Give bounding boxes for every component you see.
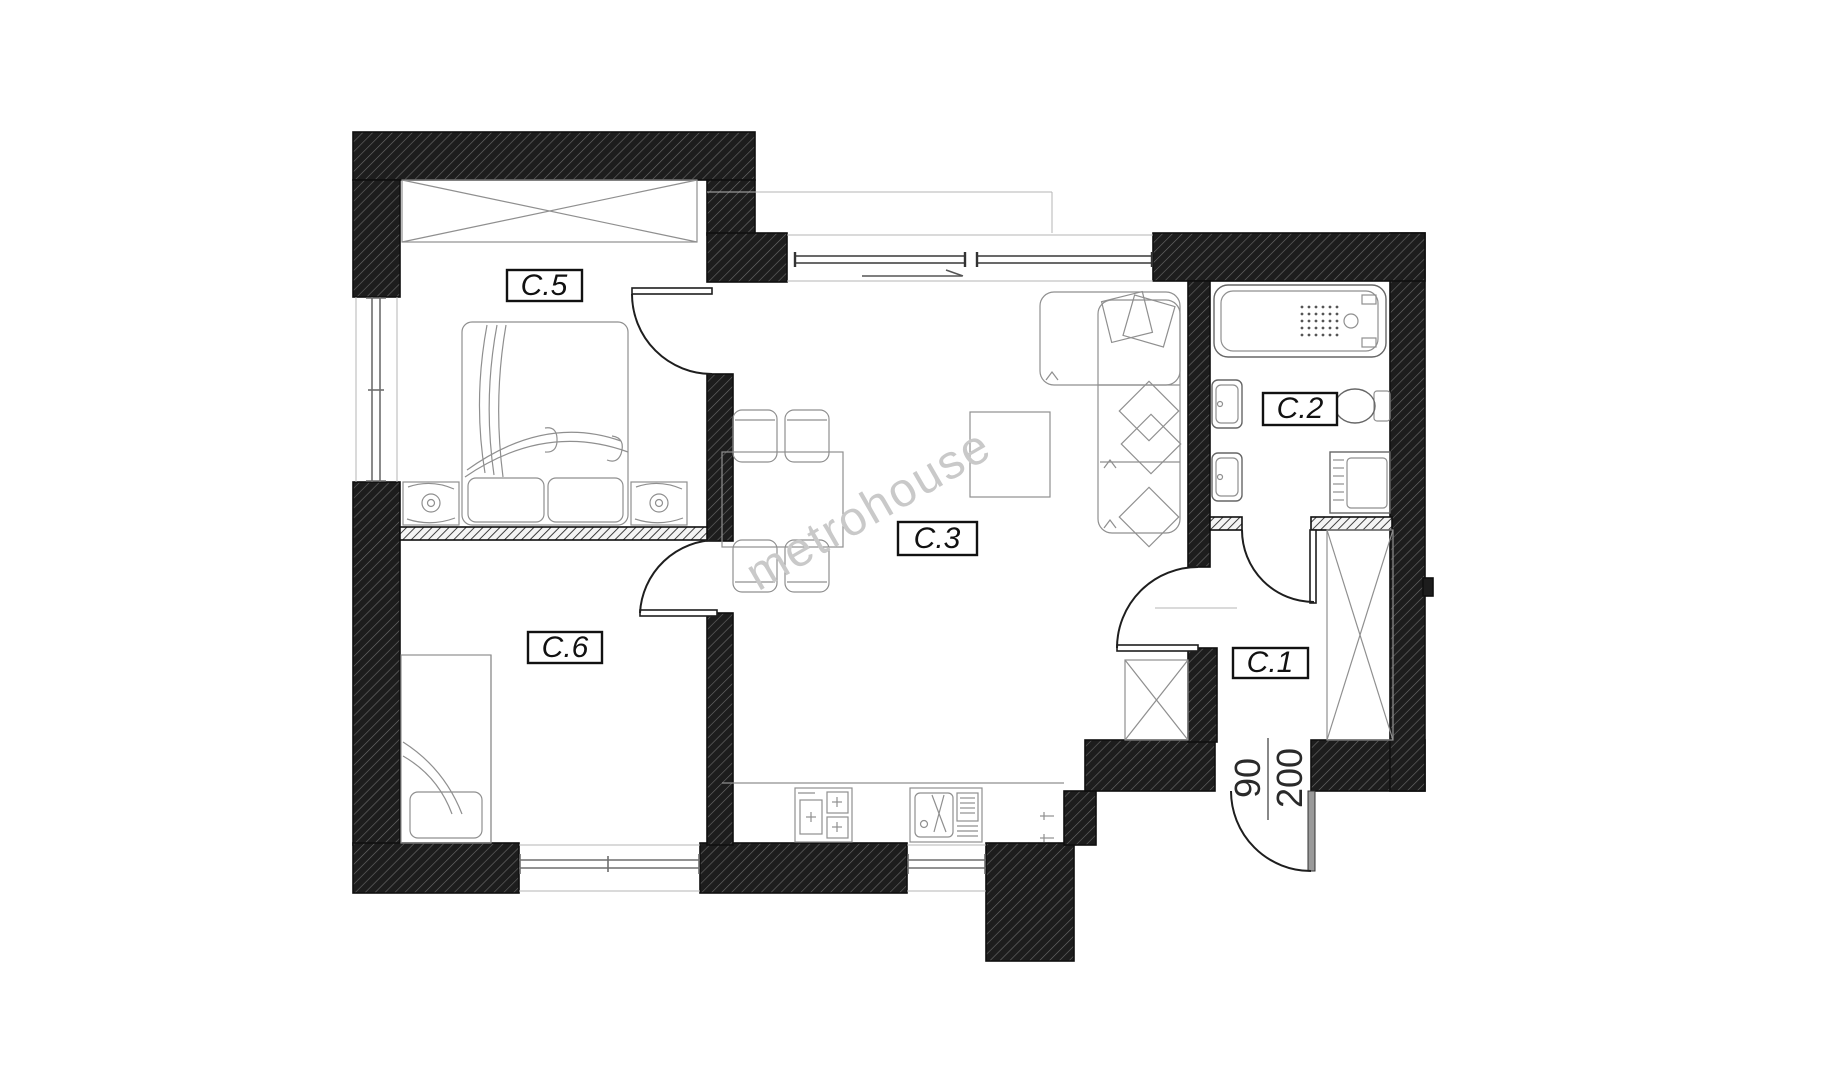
bathtub [1214,285,1386,357]
wall-segment [707,233,787,282]
entrance-door-dimension: 90 200 [1227,738,1310,820]
bathroom-sink [1212,380,1242,428]
door-height-value: 200 [1269,748,1310,808]
wall-segment [1064,791,1096,845]
nightstand-right [631,482,687,525]
window-kitchen [907,845,986,891]
sofa-pillow [1102,292,1181,547]
corner-sofa [1040,292,1181,547]
room-label-c2: C.2 [1263,392,1337,425]
wall-segment [400,527,707,540]
wall-segment [1188,648,1217,742]
shower-dots [1301,306,1339,337]
svg-text:C.5: C.5 [521,269,568,302]
pillow [548,478,623,522]
svg-text:C.6: C.6 [542,631,589,664]
pillow [410,792,482,838]
room-label-c3: C.3 [898,522,977,555]
floor-plan-drawing: metrohouse C.5 C.6 C.3 C.2 C.1 90 200 [0,0,1834,1080]
kitchen-counter [722,783,1064,842]
nightstand-left [403,482,459,525]
wall-segment [353,180,400,297]
window-c6-bottom [519,845,700,891]
furniture-c1 [1327,530,1393,740]
door-c3-to-c1 [1117,567,1237,651]
room-label-c5: C.5 [507,269,582,302]
wall-segment [1153,233,1425,281]
wall-segment [1390,233,1425,791]
hall-wardrobe [1327,530,1393,740]
door-c5 [632,288,712,374]
single-bed [401,655,491,843]
kitchen-sink [910,788,982,842]
furniture-c6 [401,655,491,843]
furniture-c5 [402,180,697,525]
room-label-c6: C.6 [528,631,602,664]
door-width-value: 90 [1227,758,1268,798]
wall-segment [707,180,755,235]
floor-plan-page: metrohouse C.5 C.6 C.3 C.2 C.1 90 200 [0,0,1834,1080]
wall-segment [1210,517,1242,530]
wall-segment [1188,281,1210,567]
svg-text:C.3: C.3 [914,522,961,555]
door-c6 [640,540,717,616]
window-c5-left [356,297,397,482]
washing-machine [1330,452,1390,513]
wall-segment [707,613,733,845]
kitchen-stove [795,788,852,842]
wall-segment [1085,740,1215,791]
pillow [468,478,544,522]
wall-segment [353,132,755,180]
wardrobe [402,180,697,242]
wall-segment [700,843,907,893]
svg-text:C.1: C.1 [1247,646,1294,679]
wall-segment [353,843,519,893]
cabinet [1125,660,1188,740]
windows [356,192,1153,891]
dining-chair [733,410,777,462]
toilet [1335,389,1390,423]
room-label-c1: C.1 [1233,646,1308,679]
wall-segment [707,374,733,541]
double-bed [462,322,628,525]
wall-notch [1423,578,1433,596]
svg-text:C.2: C.2 [1277,392,1324,425]
wall-segment [1311,517,1392,530]
dining-chair [785,410,829,462]
wall-segment [986,843,1074,961]
slide-direction-arrow [862,270,963,276]
door-c1-to-c2 [1242,530,1316,603]
bathroom-sink [1212,453,1242,501]
wall-segment [353,482,400,845]
